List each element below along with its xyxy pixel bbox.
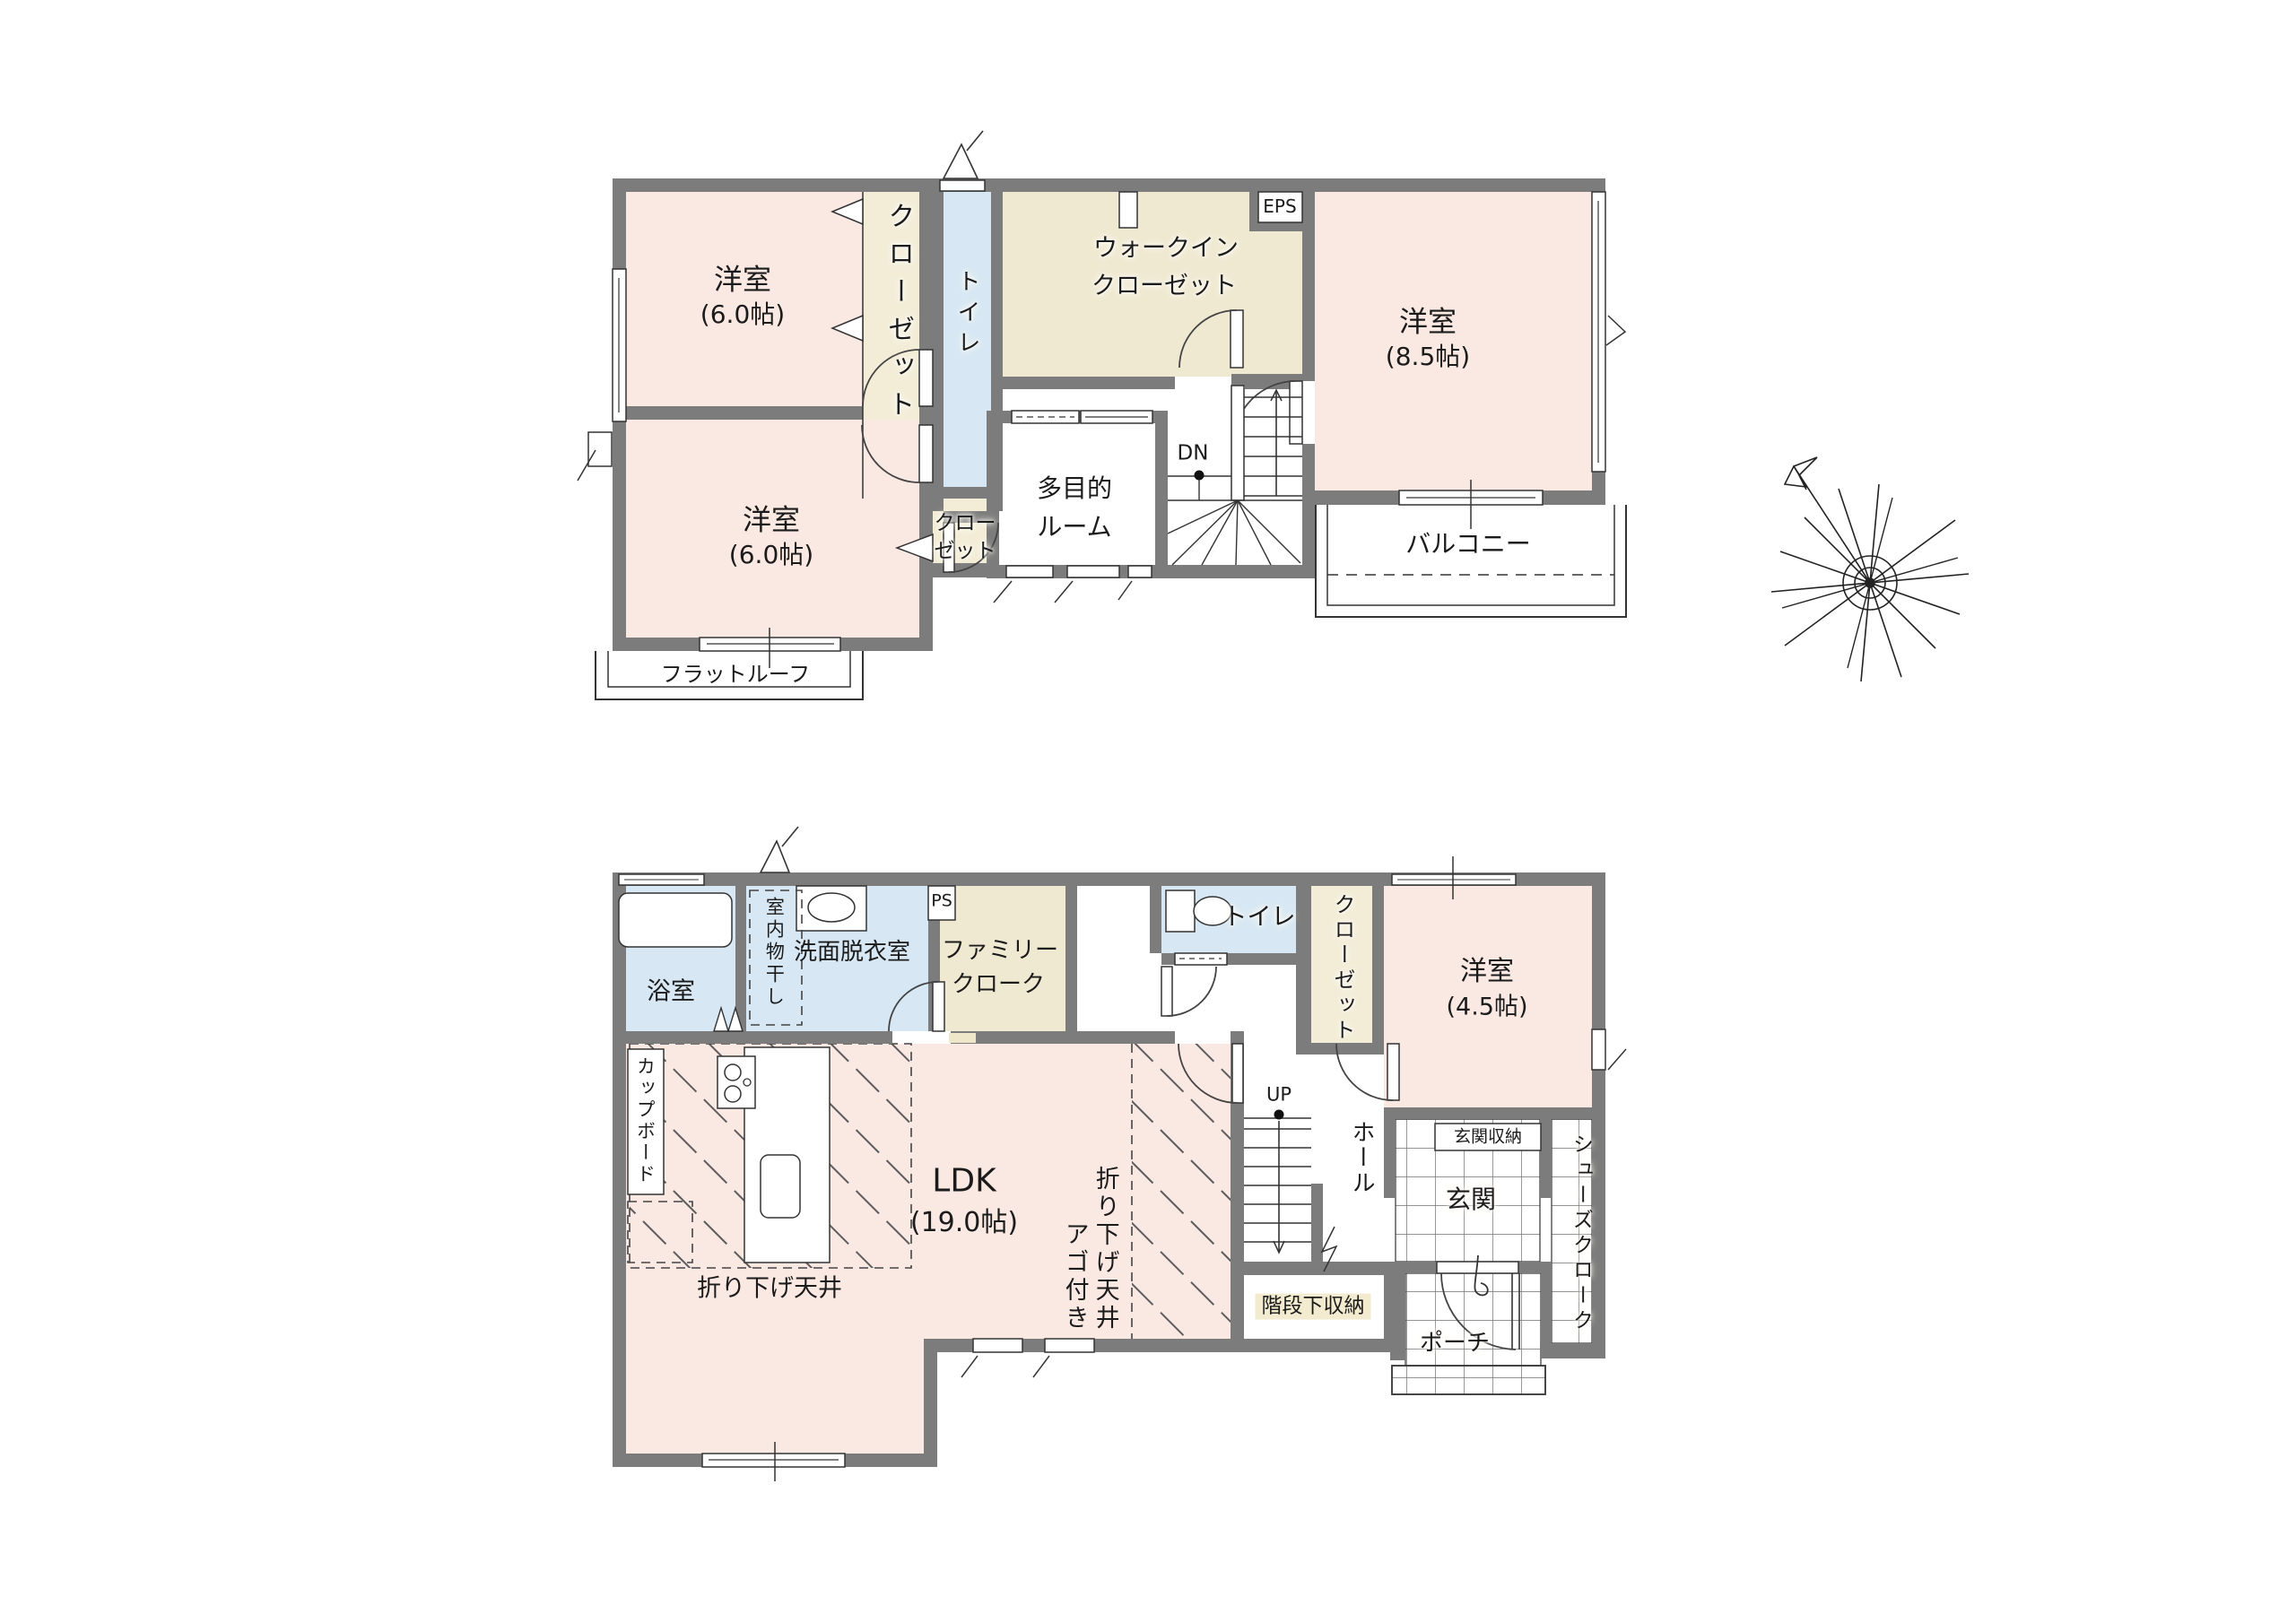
f2-closet2-line1: クロー — [935, 513, 996, 535]
f2-multi-line2: ルーム — [1037, 514, 1111, 541]
floor2-stairs — [1168, 386, 1302, 565]
f1-entrance-label: 玄関 — [1446, 1186, 1496, 1213]
f2-room1-name: 洋室 — [714, 265, 771, 296]
f1-cupboard-label: カップボード — [635, 1056, 656, 1185]
f1-hall-label: ホール — [1349, 1120, 1374, 1195]
f2-closet2-line2: ゼット — [935, 541, 996, 563]
f1-up-label: UP — [1266, 1085, 1291, 1106]
f2-dn-label: DN — [1178, 443, 1209, 465]
f1-lowered-ceiling-ago-line1: 折り下げ天井 — [1091, 1166, 1118, 1332]
f2-eps-label: EPS — [1263, 197, 1296, 217]
f2-wic-line1: ウォークイン — [1093, 235, 1239, 261]
floor1-stairs — [1244, 1110, 1311, 1254]
f2-room2-size: (6.0帖) — [729, 542, 813, 568]
f1-ldk-size: (19.0帖) — [910, 1209, 1018, 1237]
f1-room-name: 洋室 — [1460, 958, 1514, 986]
f1-ps-label: PS — [931, 892, 952, 911]
compass-icon — [1771, 457, 1969, 681]
f1-family-line1: ファミリー — [942, 938, 1058, 963]
f2-room1-size: (6.0帖) — [700, 301, 785, 328]
f1-entrance-storage-label: 玄関収納 — [1454, 1128, 1522, 1147]
f1-room-size: (4.5帖) — [1446, 994, 1527, 1020]
f2-flat-roof-label: フラットルーフ — [661, 664, 811, 687]
f1-shoe-closet-label: シューズクローク — [1570, 1133, 1592, 1334]
f1-lowered-ceiling-label: 折り下げ天井 — [697, 1275, 842, 1301]
f2-closet-top-label: クローゼット — [883, 202, 912, 428]
f1-family-line2: クローク — [952, 972, 1045, 997]
floor-plan-canvas: 洋室 (6.0帖) 洋室 (6.0帖) クローゼット トイレ ウォークイン クロ… — [0, 0, 2296, 1623]
f1-porch-label: ポーチ — [1420, 1331, 1490, 1356]
f1-lowered-ceiling-ago-line2: アゴ付き — [1061, 1221, 1087, 1332]
f2-room3-name: 洋室 — [1399, 307, 1457, 338]
f1-closet-label: クローゼット — [1330, 893, 1353, 1044]
f1-washroom-label: 洗面脱衣室 — [794, 940, 910, 965]
f2-room2-name: 洋室 — [743, 505, 800, 536]
f2-toilet-label: トイレ — [954, 269, 979, 360]
f1-under-stairs-label: 階段下収納 — [1256, 1294, 1371, 1320]
f1-laundry-label: 室内物干し — [764, 897, 785, 1009]
f1-bath-label: 浴室 — [647, 978, 695, 1004]
f2-room3-size: (8.5帖) — [1386, 343, 1470, 370]
f1-toilet-label: トイレ — [1223, 904, 1296, 930]
f2-multi-line1: 多目的 — [1037, 475, 1112, 502]
f2-balcony-label: バルコニー — [1405, 531, 1530, 558]
f2-wic-line2: クローゼット — [1091, 273, 1237, 299]
f1-ldk-name: LDK — [932, 1165, 996, 1200]
